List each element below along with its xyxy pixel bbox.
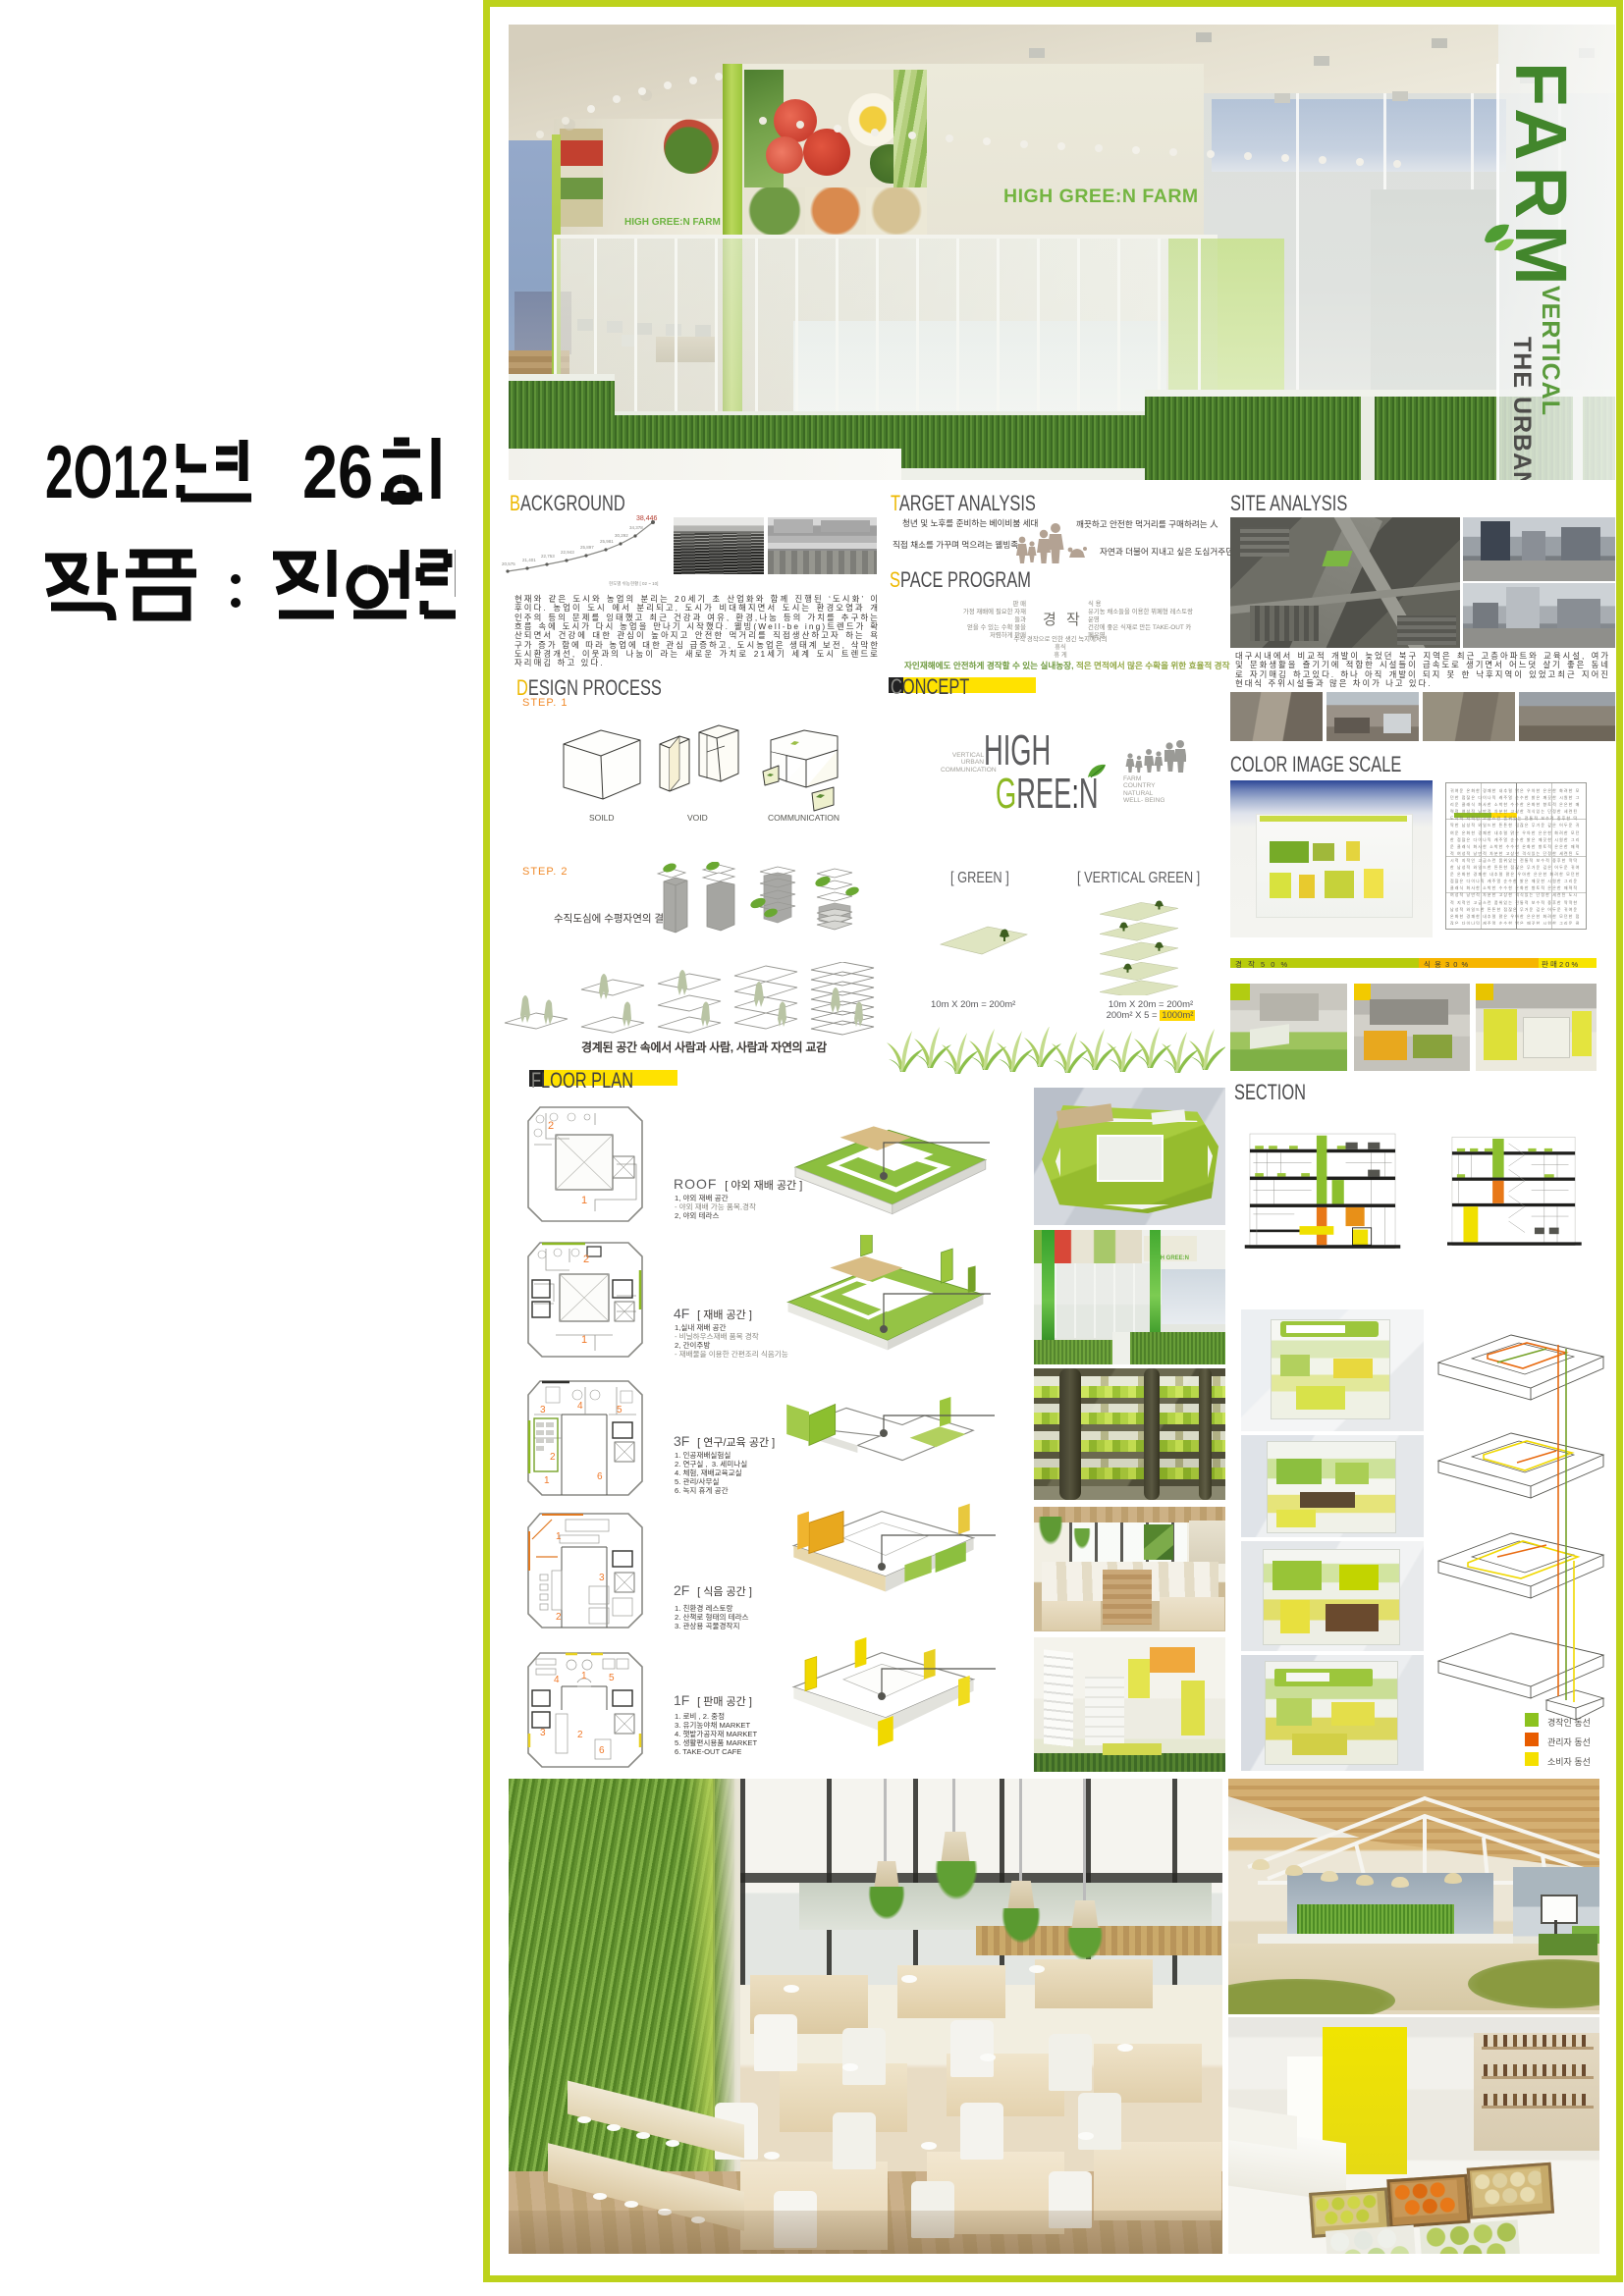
svg-text:25,981: 25,981 xyxy=(600,539,614,544)
svg-text:SOILD: SOILD xyxy=(589,813,615,823)
svg-text:2: 2 xyxy=(548,1120,554,1132)
svg-text:2: 2 xyxy=(550,1452,556,1463)
svg-text:30,292: 30,292 xyxy=(615,533,628,538)
svg-text:1: 1 xyxy=(544,1475,550,1486)
svg-text:6: 6 xyxy=(597,1471,603,1482)
svg-text:5: 5 xyxy=(617,1405,623,1415)
svg-text:1: 1 xyxy=(581,1334,587,1346)
svg-text:25,897: 25,897 xyxy=(580,545,594,550)
svg-text:6: 6 xyxy=(599,1745,605,1756)
svg-text:5: 5 xyxy=(609,1673,615,1683)
svg-text:3: 3 xyxy=(540,1405,546,1415)
svg-text:2: 2 xyxy=(577,1730,583,1740)
svg-text:2: 2 xyxy=(583,1254,589,1265)
svg-text:22,943: 22,943 xyxy=(561,550,574,555)
svg-text:2: 2 xyxy=(556,1612,562,1623)
svg-text:1: 1 xyxy=(581,1671,587,1682)
svg-text:22,753: 22,753 xyxy=(541,554,555,559)
svg-text:4: 4 xyxy=(554,1675,560,1685)
svg-text:38,446: 38,446 xyxy=(636,515,658,522)
svg-text:3: 3 xyxy=(599,1573,605,1583)
svg-text:3: 3 xyxy=(540,1728,546,1738)
svg-text:COMMUNICATION: COMMUNICATION xyxy=(768,813,839,823)
svg-text:34,378: 34,378 xyxy=(629,525,643,530)
svg-text:26: 26 xyxy=(302,436,373,505)
svg-text:1: 1 xyxy=(556,1531,562,1542)
svg-text:2O12: 2O12 xyxy=(45,436,169,505)
svg-text:21,401: 21,401 xyxy=(522,558,536,562)
svg-text:4: 4 xyxy=(577,1401,583,1412)
svg-text:20,575: 20,575 xyxy=(502,561,515,566)
svg-text:1: 1 xyxy=(581,1195,587,1206)
svg-text:VOID: VOID xyxy=(687,813,708,823)
svg-text:현도별 쉬농현황 [ 02 ~ 10]: 현도별 쉬농현황 [ 02 ~ 10] xyxy=(609,580,658,587)
